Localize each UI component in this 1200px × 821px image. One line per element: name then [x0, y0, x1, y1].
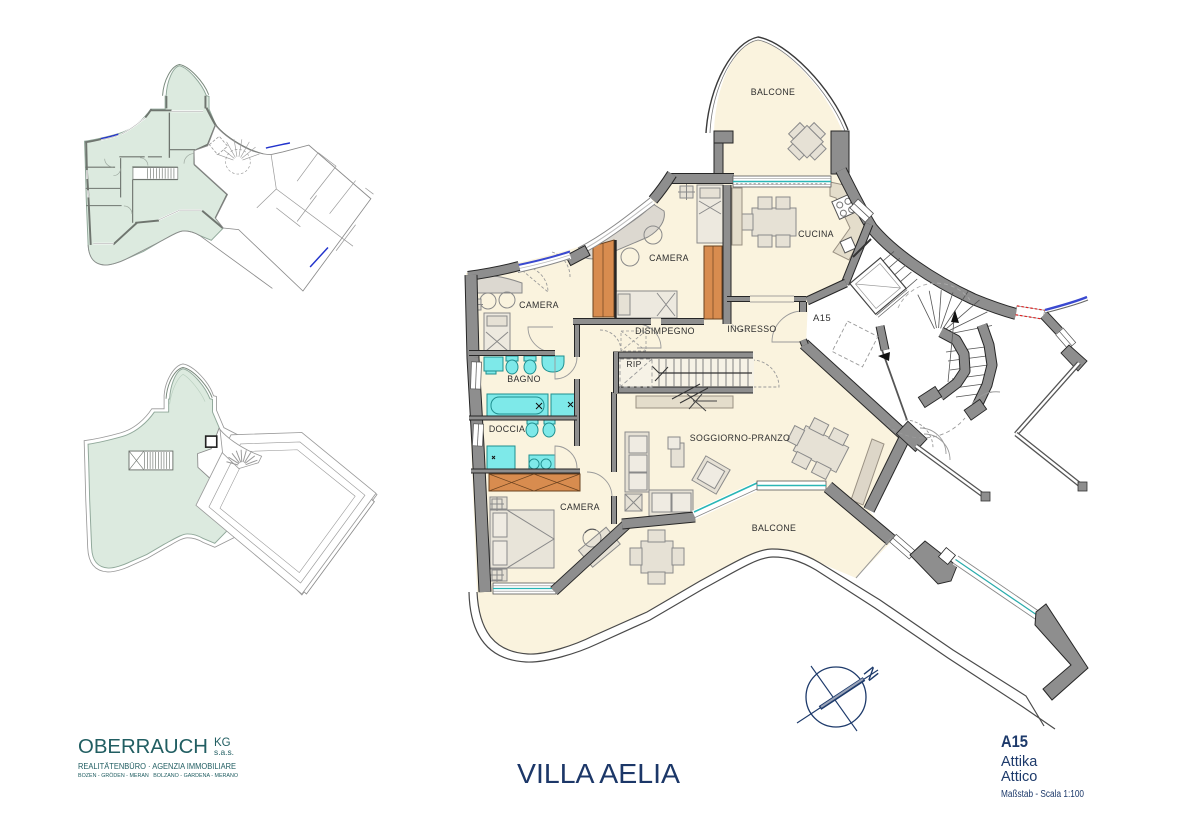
svg-text:s.a.s.: s.a.s.: [214, 747, 234, 757]
svg-text:BOZEN - GRÖDEN - MERAN BOLZA: BOZEN - GRÖDEN - MERAN BOLZANO - GARDENA…: [78, 772, 238, 779]
svg-text:OBERRAUCH: OBERRAUCH: [78, 735, 208, 758]
svg-text:DOCCIA: DOCCIA: [489, 424, 525, 434]
svg-text:CUCINA: CUCINA: [798, 229, 834, 239]
svg-text:CAMERA: CAMERA: [519, 300, 559, 310]
svg-text:Attico: Attico: [1001, 769, 1037, 785]
svg-text:SOGGIORNO-PRANZO: SOGGIORNO-PRANZO: [690, 433, 790, 443]
svg-text:INGRESSO: INGRESSO: [727, 324, 776, 334]
svg-text:Maßstab - Scala 1:100: Maßstab - Scala 1:100: [1001, 789, 1084, 800]
svg-text:A15: A15: [1001, 733, 1028, 751]
svg-text:BALCONE: BALCONE: [751, 87, 796, 97]
svg-text:CAMERA: CAMERA: [649, 253, 689, 263]
svg-text:VILLA AELIA: VILLA AELIA: [517, 758, 680, 789]
svg-text:CAMERA: CAMERA: [560, 502, 600, 512]
svg-text:BAGNO: BAGNO: [507, 374, 541, 384]
svg-text:BALCONE: BALCONE: [752, 523, 797, 533]
svg-text:RIP: RIP: [626, 359, 641, 369]
svg-text:DISIMPEGNO: DISIMPEGNO: [635, 326, 695, 336]
svg-text:A15: A15: [813, 313, 831, 324]
svg-text:REALITÄTENBÜRO · AGENZIA IMMOB: REALITÄTENBÜRO · AGENZIA IMMOBILIARE: [78, 762, 236, 771]
svg-text:Attika: Attika: [1001, 754, 1038, 770]
